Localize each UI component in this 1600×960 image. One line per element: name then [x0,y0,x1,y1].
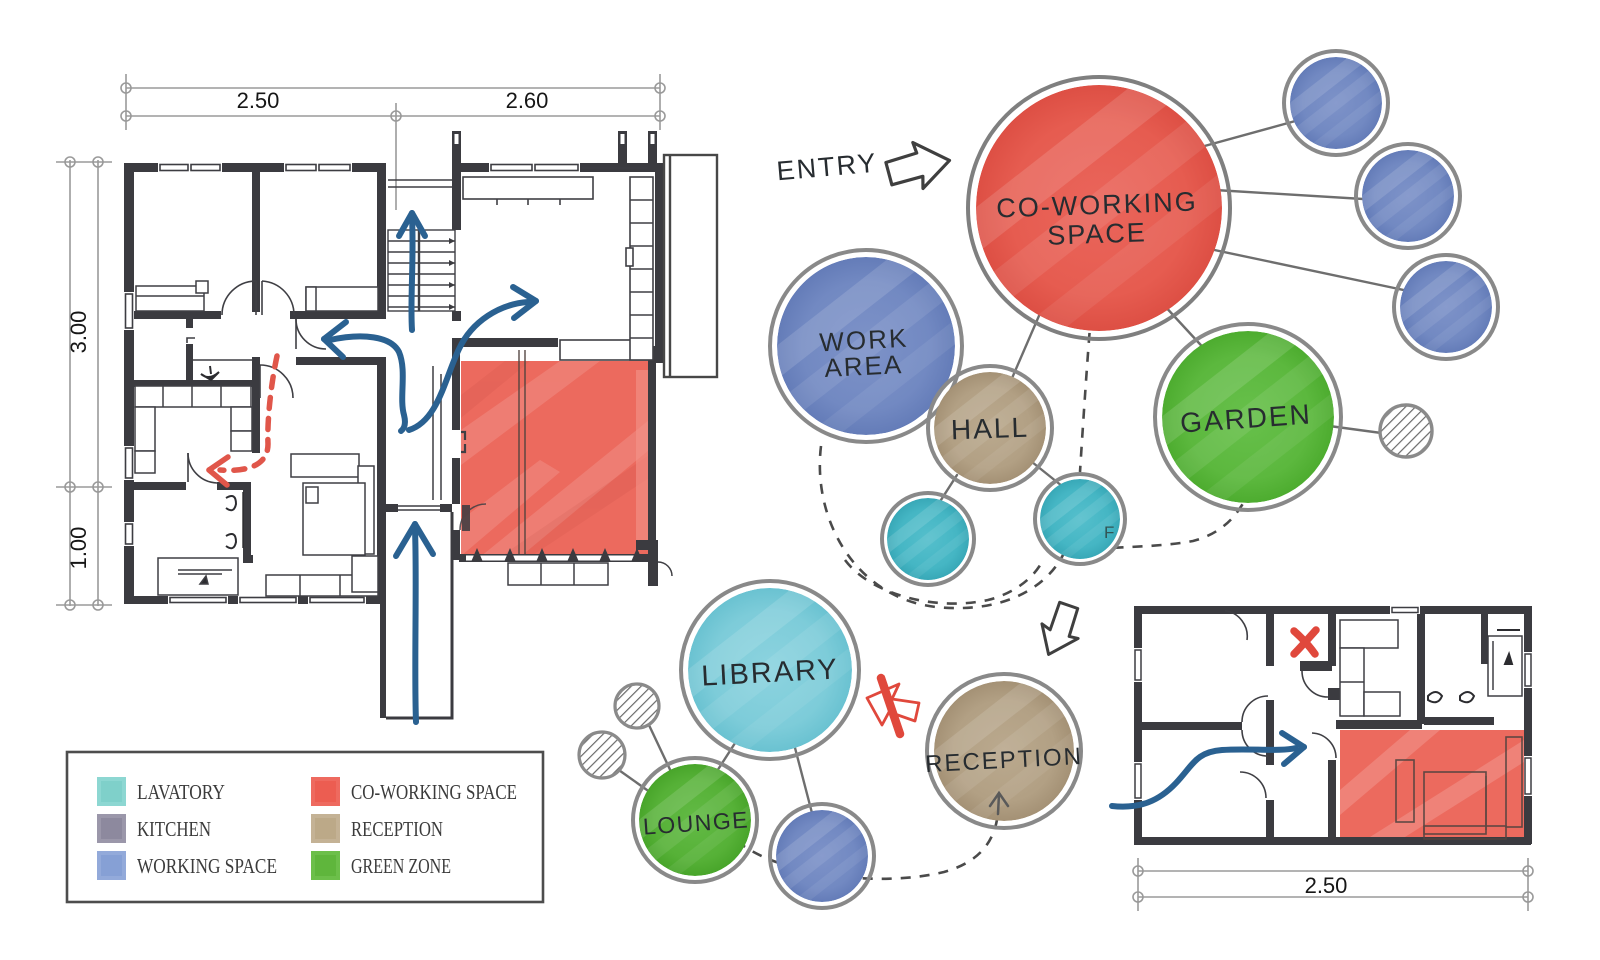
svg-text:2.50: 2.50 [237,88,280,113]
svg-text:LAVATORY: LAVATORY [137,780,225,804]
svg-text:GREEN ZONE: GREEN ZONE [351,854,451,878]
svg-text:2.60: 2.60 [506,88,549,113]
svg-text:HALL: HALL [950,412,1029,446]
svg-text:2.50: 2.50 [1305,873,1348,898]
svg-text:F: F [1104,523,1114,542]
svg-text:RECEPTION: RECEPTION [351,817,443,841]
svg-text:KITCHEN: KITCHEN [137,817,211,841]
svg-text:CO-WORKING SPACE: CO-WORKING SPACE [351,780,517,804]
svg-text:WORKING SPACE: WORKING SPACE [137,854,277,878]
svg-text:AREA: AREA [824,349,904,383]
svg-text:3.00: 3.00 [66,311,91,354]
svg-text:ENTRY: ENTRY [775,148,878,187]
svg-text:SPACE: SPACE [1047,217,1148,250]
svg-text:1.00: 1.00 [66,527,91,570]
